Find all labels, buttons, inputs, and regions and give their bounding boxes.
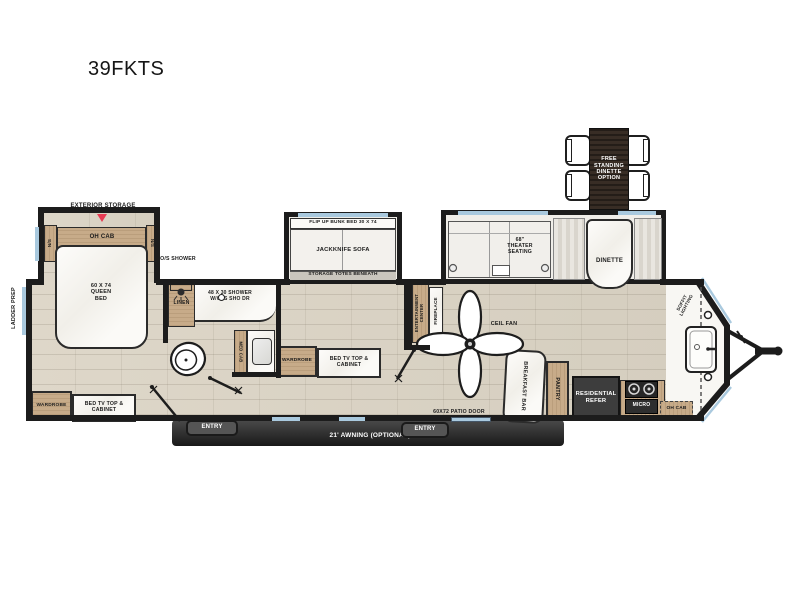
dinette-bench-left: [553, 218, 585, 280]
nightstand-left-label: N/S: [46, 233, 54, 253]
cooktop: [625, 381, 658, 398]
nose-window-strips: [702, 278, 731, 422]
dinette-bench-right: [634, 218, 662, 280]
ladder-prep-label: LADDER PREP: [9, 278, 19, 338]
dinette-chair: [565, 170, 591, 201]
os-shower-label: O/S SHOWER: [158, 256, 198, 262]
window-bottom-1: [272, 417, 300, 421]
exterior-storage-label: EXTERIOR STORAGE: [58, 203, 148, 210]
theater-backrest-line: [449, 233, 550, 234]
entry-door-left: ENTRY: [186, 420, 238, 436]
window-bottom-2: [339, 417, 365, 421]
theater-divider-1: [489, 222, 490, 277]
bunkroom-wardrobe-label: WARDROBE: [278, 358, 316, 364]
ceil-fan-label: CEIL FAN: [482, 321, 526, 327]
bedroom-bed-tv-label: BED TV TOP & CABINET: [84, 401, 124, 413]
microwave-label: MICRO: [625, 403, 658, 409]
entry-right-label: ENTRY: [414, 426, 435, 433]
kitchen-sink-icon: [686, 327, 716, 372]
bunkroom-bed-tv-label: BED TV TOP & CABINET: [329, 356, 369, 368]
flip-up-bunk-label: FLIP UP BUNK BED 30 X 74: [290, 220, 396, 226]
bathroom-wall-right-bottom: [276, 325, 281, 378]
patio-door-label: 60X72 PATIO DOOR: [426, 409, 492, 415]
bathroom-wall-bottom: [232, 372, 280, 377]
window-bunk-slide: [298, 213, 388, 217]
theater-seating-label: 68" THEATER SEATING: [505, 237, 535, 255]
shower-label: 48 X 30 SHOWER W/GLS SHO DR: [199, 291, 261, 303]
fireplace-label: FIREPLACE: [431, 287, 441, 335]
hitch: [728, 331, 783, 379]
window-theater-slide-2: [618, 211, 656, 215]
exterior-storage-arrow: [97, 214, 107, 222]
soffit-lights: [705, 312, 712, 381]
shower-drain: [218, 294, 225, 301]
rear-wall: [26, 279, 32, 421]
ent-wall-stub: [404, 345, 430, 350]
dinette-booth-table: [586, 219, 633, 289]
storage-totes-label: STORAGE TOTES BENEATH: [290, 272, 396, 278]
entry-door-right: ENTRY: [401, 422, 449, 438]
entertainment-center-label: ENTERTAINMENT CENTER: [413, 285, 427, 341]
bathroom-sink-basin: [252, 338, 272, 365]
nose-wall: [698, 282, 727, 418]
window-theater-slide-1: [458, 211, 548, 215]
top-wall-b: [156, 279, 290, 285]
dinette-chair: [565, 135, 591, 166]
bathroom-wall-left: [163, 281, 168, 343]
dinette-option-label: FREE STANDING DINETTE OPTION: [593, 156, 625, 182]
window-bed-slide: [35, 227, 39, 261]
dinette-label: DINETTE: [588, 258, 631, 265]
kitchen-oh-cab-label: OH CAB: [660, 406, 693, 412]
residential-refer-label: RESIDENTIAL REFER: [574, 391, 618, 405]
nightstand-right-label: N/S: [148, 233, 156, 253]
pantry-label: PANTRY: [552, 364, 562, 414]
ent-wall: [404, 281, 412, 347]
theater-console: [492, 265, 510, 276]
bottom-wall: [26, 415, 704, 421]
bedroom-wardrobe-label: WARDROBE: [33, 403, 70, 409]
dinette-option-table: FREE STANDING DINETTE OPTION: [589, 128, 629, 210]
entry-left-label: ENTRY: [201, 424, 222, 431]
window-rear: [22, 287, 26, 335]
bedroom-oh-cab-label: OH CAB: [72, 234, 132, 241]
queen-bed-label: 60 X 74 QUEEN BED: [84, 283, 118, 302]
floorplan-39fkts: 39FKTS FREE STANDING DINETTE OPTION 21' …: [0, 0, 800, 600]
linen-label: LINEN: [167, 301, 196, 307]
top-wall-d: [660, 279, 704, 285]
med-cab-label: MED CAB: [237, 334, 245, 371]
jackknife-sofa-label: JACKKNIFE SOFA: [308, 247, 378, 254]
page-title: 39FKTS: [88, 58, 164, 82]
patio-door-sill: [451, 417, 491, 422]
